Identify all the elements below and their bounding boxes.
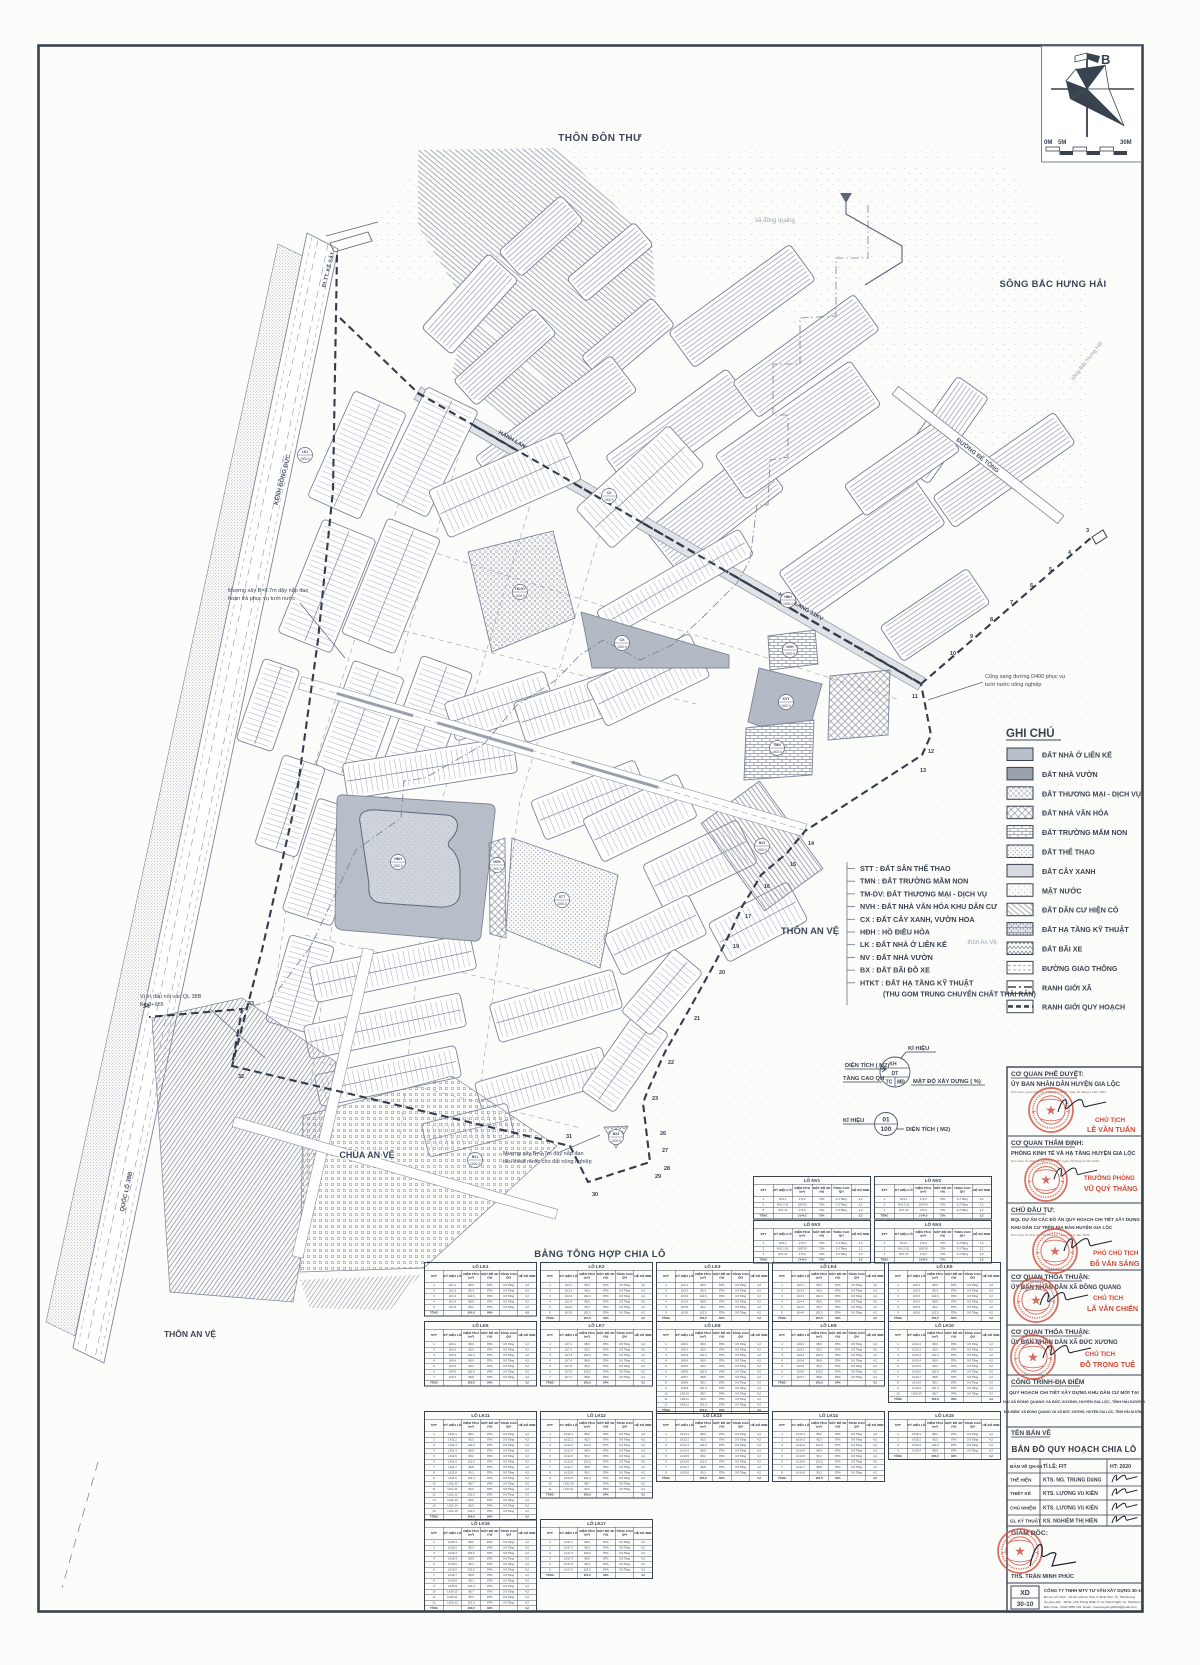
svg-text:XD: XD <box>1020 1590 1030 1597</box>
svg-text:★: ★ <box>1045 1102 1057 1117</box>
svg-text:KTS. NG. TRUNG DũNG: KTS. NG. TRUNG DũNG <box>1043 1478 1102 1484</box>
svg-text:★: ★ <box>1027 1349 1039 1364</box>
svg-text:Đ/c trụ sở chính : Số 04, phố: Đ/c trụ sở chính : Số 04, phố An Thái, P… <box>1044 1595 1135 1599</box>
svg-text:THỂ HIỆN: THỂ HIỆN <box>1010 1476 1032 1483</box>
svg-text:ỦY BAN NHÂN DÂN XÃ ĐỨC XƯƠNG: ỦY BAN NHÂN DÂN XÃ ĐỨC XƯƠNG <box>1011 1339 1118 1346</box>
svg-text:CHỦ TỊCH: CHỦ TỊCH <box>1085 1349 1116 1358</box>
svg-text:KHU DÂN CƯ TRÊN ĐỊA BÀN HUYỆN: KHU DÂN CƯ TRÊN ĐỊA BÀN HUYỆN GIA LỘC <box>1011 1223 1113 1230</box>
svg-text:★: ★ <box>1014 1543 1026 1558</box>
svg-text:KTS. LƯƠNG Vũ KIÊN: KTS. LƯƠNG Vũ KIÊN <box>1043 1489 1098 1497</box>
svg-text:THS. TRẦN MINH PHÚC: THS. TRẦN MINH PHÚC <box>1011 1573 1074 1580</box>
svg-text:BẢN ĐỒ QUY HOẠCH CHIA LÔ: BẢN ĐỒ QUY HOẠCH CHIA LÔ <box>1012 1443 1137 1454</box>
svg-text:HT: 2020: HT: 2020 <box>1110 1464 1131 1470</box>
svg-text:PHÓ CHỦ TỊCH: PHÓ CHỦ TỊCH <box>1093 1248 1139 1257</box>
svg-text:GL KỸ THUẬT: GL KỸ THUẬT <box>1010 1518 1041 1524</box>
svg-text:LÊ VĂN TUẤN: LÊ VĂN TUẤN <box>1087 1124 1135 1134</box>
svg-text:CHỦ TỊCH: CHỦ TỊCH <box>1093 1293 1124 1302</box>
svg-text:CHỦ ĐẦU TƯ:: CHỦ ĐẦU TƯ: <box>1011 1204 1055 1214</box>
svg-text:KS. NGHIÊM THỊ HIỀN: KS. NGHIÊM THỊ HIỀN <box>1043 1517 1098 1525</box>
svg-text:ỦY BAN NHÂN DÂN XÃ ĐỒNG QUANG: ỦY BAN NHÂN DÂN XÃ ĐỒNG QUANG <box>1011 1284 1122 1291</box>
svg-text:CƠ QUAN THỎA THUẬN:: CƠ QUAN THỎA THUẬN: <box>1011 1327 1090 1336</box>
svg-text:CƠ QUAN THỎA THUẬN:: CƠ QUAN THỎA THUẬN: <box>1011 1272 1090 1281</box>
svg-text:CƠ QUAN PHÊ DUYỆT:: CƠ QUAN PHÊ DUYỆT: <box>1011 1069 1084 1078</box>
svg-text:THIẾT KẾ: THIẾT KẾ <box>1010 1490 1031 1496</box>
svg-text:PHÒNG KINH TẾ VÀ HẠ TẦNG HUYỆN: PHÒNG KINH TẾ VÀ HẠ TẦNG HUYỆN GIA LỘC <box>1011 1149 1135 1157</box>
svg-text:★: ★ <box>1040 1173 1051 1187</box>
svg-text:★: ★ <box>1049 1243 1061 1258</box>
svg-text:★: ★ <box>1030 1292 1042 1307</box>
svg-text:CƠ QUAN THẨM ĐỊNH:: CƠ QUAN THẨM ĐỊNH: <box>1011 1138 1084 1147</box>
svg-text:Vp giao dịch : Số 61, phố Thốn: Vp giao dịch : Số 61, phố Thống Nhất, P.… <box>1044 1600 1143 1604</box>
svg-text:CÔNG TRÌNH-ĐỊA ĐIỂM: CÔNG TRÌNH-ĐỊA ĐIỂM <box>1011 1377 1085 1386</box>
svg-text:BẢN VẼ QH-04: BẢN VẼ QH-04 <box>1010 1463 1043 1469</box>
svg-text:QUY HOẠCH CHI TIẾT XÂY DỰNG KH: QUY HOẠCH CHI TIẾT XÂY DỰNG KHU DÂN CƯ M… <box>1009 1388 1139 1396</box>
svg-text:Đỗ VĂN SÁNG: Đỗ VĂN SÁNG <box>1090 1259 1140 1268</box>
svg-text:ỦY BAN NHÂN DÂN HUYỆN GIA LỘC: ỦY BAN NHÂN DÂN HUYỆN GIA LỘC <box>1011 1080 1121 1088</box>
svg-text:TRƯỞNG PHÒNG: TRƯỞNG PHÒNG <box>1084 1174 1135 1182</box>
svg-text:ĐỊA ĐIỂM: XÃ ĐỒNG QUANG VÀ XÃ: ĐỊA ĐIỂM: XÃ ĐỒNG QUANG VÀ XÃ ĐỨC XƯƠNG,… <box>1004 1409 1144 1414</box>
svg-text:30-10: 30-10 <box>1017 1601 1034 1608</box>
svg-text:BQL DỰ ÁN CÁC ĐỒ ÁN QUY HOẠCH: BQL DỰ ÁN CÁC ĐỒ ÁN QUY HOẠCH CHI TIẾT X… <box>1011 1216 1140 1222</box>
svg-text:TỈ LỆ: FIT: TỈ LỆ: FIT <box>1043 1462 1067 1470</box>
svg-text:CÔNG TY TNHH MTV TƯ VẤN XÂY DỰ: CÔNG TY TNHH MTV TƯ VẤN XÂY DỰNG 30-10 <box>1044 1588 1144 1593</box>
svg-text:VŨ QUÝ THẮNG: VŨ QUÝ THẮNG <box>1084 1184 1138 1193</box>
svg-text:LÃ VĂN CHIẾN: LÃ VĂN CHIẾN <box>1087 1303 1138 1313</box>
svg-text:ĐỖ TRỌNG TUỆ: ĐỖ TRỌNG TUỆ <box>1080 1360 1135 1369</box>
svg-text:HAI XÃ ĐỒNG QUANG VÀ ĐỨC XƯƠNG: HAI XÃ ĐỒNG QUANG VÀ ĐỨC XƯƠNG, HUYỆN GI… <box>1003 1399 1145 1404</box>
svg-text:Điện thoại : 0220 3852 153, Em: Điện thoại : 0220 3852 153, Email : tuva… <box>1044 1605 1137 1609</box>
svg-text:CHỦ TỊCH: CHỦ TỊCH <box>1095 1115 1126 1124</box>
svg-text:TÊN BẢN VẼ: TÊN BẢN VẼ <box>1011 1428 1052 1437</box>
svg-text:CHỦ NHIỆM: CHỦ NHIỆM <box>1010 1504 1036 1511</box>
svg-text:KTS. LƯƠNG Vũ KIÊN: KTS. LƯƠNG Vũ KIÊN <box>1043 1504 1098 1512</box>
